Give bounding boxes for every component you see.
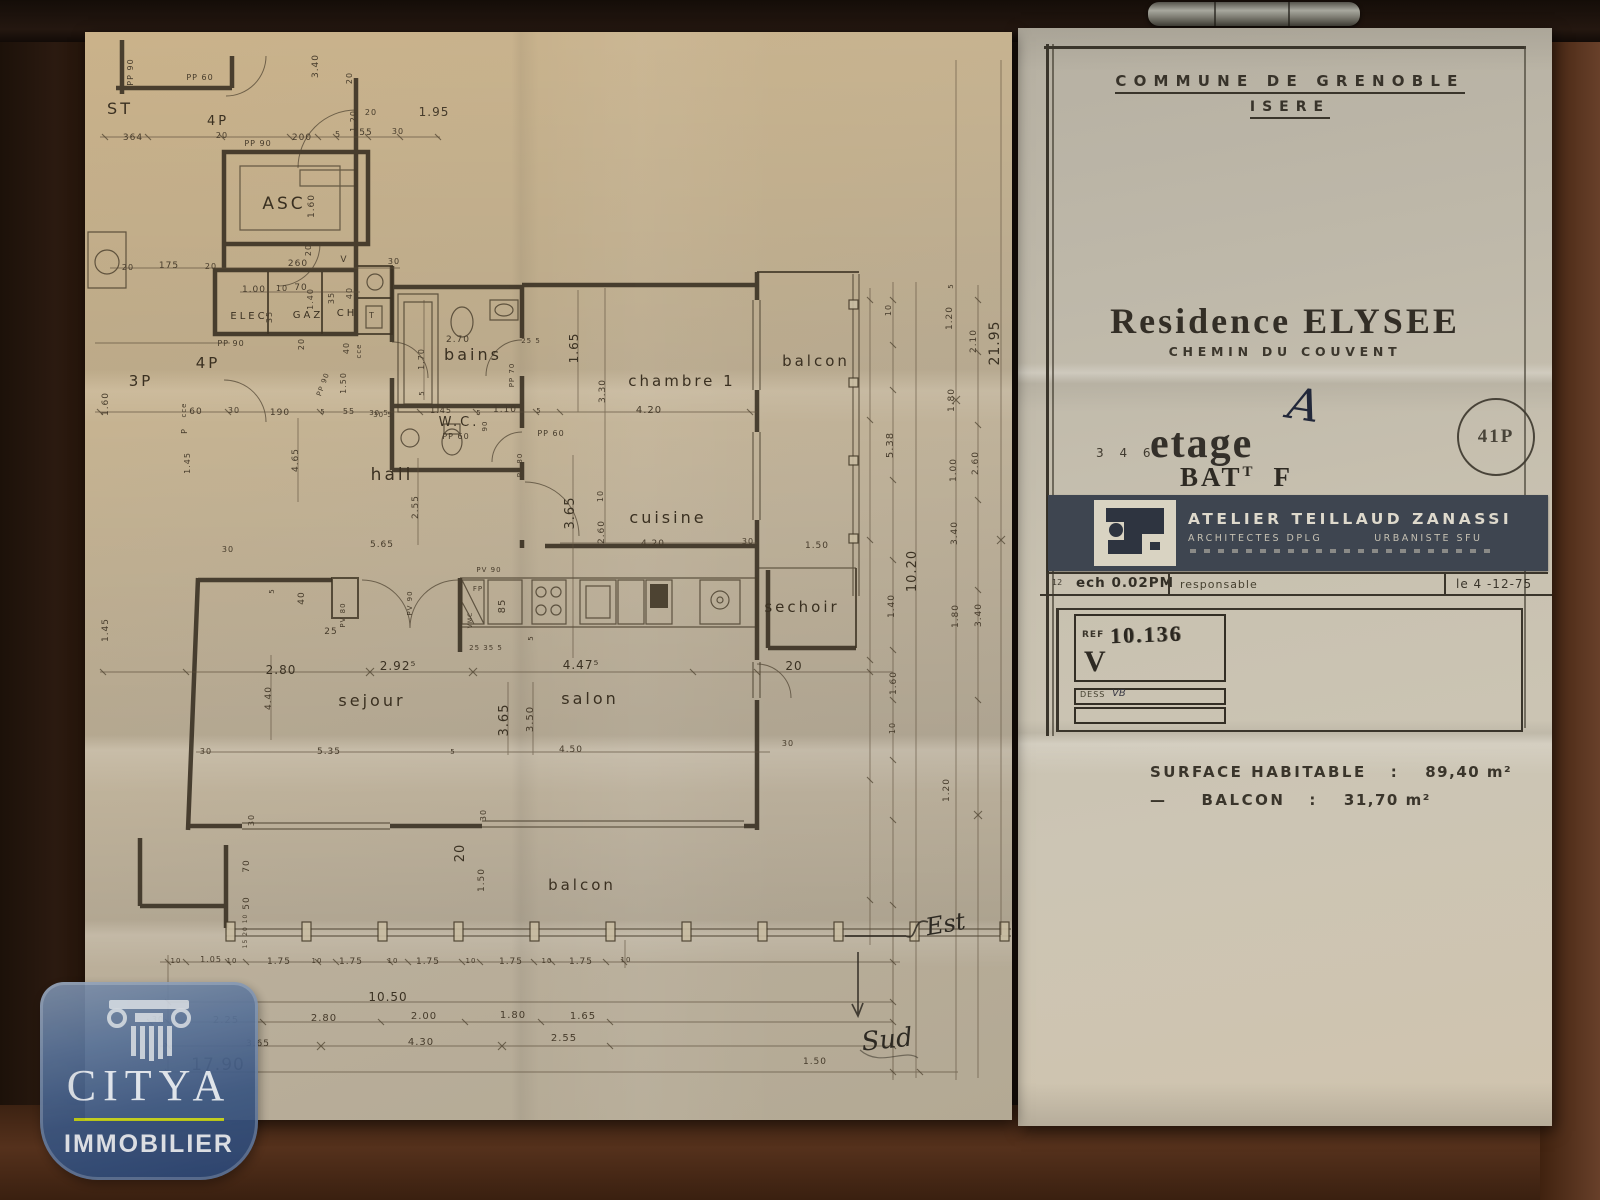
ref-label: REF	[1082, 630, 1104, 640]
dimension-label: 1.80	[947, 388, 957, 412]
table-hinge	[1148, 2, 1360, 26]
dimension-label: PV 90	[476, 566, 501, 574]
dimension-label: 2.55	[551, 1033, 577, 1044]
citya-brand: CITYA	[67, 1064, 232, 1108]
dimension-label: 3.65	[563, 497, 578, 530]
dimension-label: 60	[189, 407, 202, 417]
room-label: W.C.	[439, 415, 480, 430]
dimension-label: 30	[222, 545, 234, 554]
dimension-label: 1.50	[805, 541, 829, 551]
photo-of-floorplan: COMMUNE DE GRENOBLE ISERE Residence ELYS…	[0, 0, 1600, 1200]
room-label: ASC	[262, 194, 305, 214]
dimension-label: 10.20	[905, 550, 920, 592]
dimension-label: 15 20 10	[242, 914, 249, 949]
surface-label: SURFACE HABITABLE	[1150, 763, 1367, 781]
dimension-label: 2.60	[971, 451, 981, 475]
room-label: ST	[107, 99, 133, 118]
dimension-label: 35	[265, 311, 274, 323]
dess-value: VB	[1112, 688, 1126, 699]
surface-value: 89,40 m²	[1425, 763, 1512, 781]
dimension-label: 5	[947, 283, 955, 288]
dimension-label: 21.95	[987, 320, 1003, 365]
bathroom-sink	[490, 300, 518, 320]
dimension-label: PP 60	[537, 429, 564, 438]
bidet	[451, 307, 473, 337]
dimension-label: 30	[247, 814, 256, 826]
dimension-label: cce	[180, 402, 188, 417]
empty-row	[1074, 707, 1226, 724]
dimension-label: PP 90	[315, 371, 331, 397]
room-label: hall	[371, 465, 414, 485]
dimension-label: 5	[527, 635, 535, 640]
dess-label: DESS	[1080, 690, 1105, 699]
dimension-label: P	[180, 428, 189, 434]
dimension-label: 10	[312, 957, 323, 965]
bat-text: BAT	[1180, 462, 1243, 492]
etage-label: etage	[1150, 420, 1253, 468]
dimension-label: 10	[596, 490, 605, 502]
dimension-label: 30	[388, 257, 400, 266]
citya-watermark: CITYA IMMOBILIER	[40, 982, 258, 1180]
dimension-label: 1.00	[242, 285, 266, 295]
batiment-label: BATTF	[1180, 462, 1293, 493]
titleblock-border-inner	[1052, 44, 1054, 736]
dimension-label: 2.10	[969, 329, 979, 353]
dimension-label: FP	[473, 585, 483, 593]
architect-fineprint	[1190, 549, 1490, 553]
dimension-label: 1.65	[570, 1011, 596, 1022]
dimension-label: 5	[418, 390, 426, 395]
residence-address: CHEMIN DU COUVENT	[1050, 344, 1520, 359]
dimension-label: PP 90	[217, 339, 244, 348]
scale-value: ech 0.02PM	[1076, 575, 1174, 591]
room-label: 4P	[196, 354, 221, 372]
date-value: le 4 -12-75	[1456, 577, 1532, 591]
dimension-label: 10	[621, 956, 632, 964]
balcon-colon: :	[1309, 791, 1318, 809]
ref-letter: V	[1084, 645, 1106, 679]
titleblock-border-top	[1044, 46, 1526, 49]
stove-block	[650, 584, 668, 608]
dimension-label: 20	[216, 131, 228, 140]
firm-sub-right: URBANISTE SFU	[1374, 533, 1482, 544]
room-label: salon	[561, 689, 619, 708]
dimension-label: 1.75	[499, 957, 523, 967]
dimension-label: 40	[342, 342, 351, 354]
dimension-label: 200	[292, 133, 312, 143]
balcon-surface-row: —BALCON:31,70 m²	[1150, 791, 1431, 809]
dimension-label: 55	[359, 128, 372, 138]
dimension-label: 4.30	[408, 1037, 434, 1048]
dimension-label: 30	[782, 739, 794, 748]
dimension-label: PP 70	[508, 363, 516, 388]
dimension-label: 2.92⁵	[380, 659, 417, 673]
architect-logo-glyph	[1094, 500, 1176, 566]
dimension-label: 90	[481, 421, 489, 432]
dimension-label: 10	[466, 957, 477, 965]
dimension-label: 5.35	[317, 747, 341, 757]
dimension-label: T	[368, 311, 375, 320]
commune-title: COMMUNE DE GRENOBLE	[1080, 72, 1500, 90]
dimension-label: 5.65	[370, 540, 394, 550]
dimension-label: 1.40	[306, 288, 315, 310]
dimension-label: 10	[888, 722, 897, 734]
washbasin	[401, 429, 419, 447]
dimension-label: 1.70	[417, 348, 426, 370]
room-label: GAZ	[293, 310, 323, 321]
scale-row-index: 12	[1052, 578, 1062, 587]
dimension-label: 70	[242, 859, 252, 872]
dimension-label: 5	[268, 588, 276, 593]
date-divider	[1444, 572, 1446, 594]
walls-thick	[116, 40, 856, 928]
dimension-label: 40	[345, 287, 354, 299]
room-label: chambre 1	[628, 372, 735, 390]
dimension-label: 10	[388, 957, 399, 965]
dimension-label: 1.45	[183, 452, 192, 474]
bat-sup: T	[1243, 464, 1256, 480]
column-capital-icon	[101, 998, 197, 1062]
titleblock-border-right	[1524, 46, 1526, 728]
dimension-label: 20	[304, 244, 313, 256]
dimension-label: 3.65	[497, 704, 512, 737]
dimension-label: 2.00	[411, 1011, 437, 1022]
dimension-label: 10	[542, 957, 553, 965]
dimension-label: 2.55	[411, 495, 421, 519]
surface-colon: :	[1391, 763, 1400, 781]
dimension-label: 1.20	[942, 778, 952, 802]
room-label: balcon	[548, 876, 616, 894]
dimension-label: 5	[536, 407, 541, 415]
dimension-label: 1.40	[887, 594, 897, 618]
residence-name: Residence ELYSEE	[1050, 300, 1520, 342]
dimension-label: 4.50	[559, 745, 583, 755]
citya-subtitle: IMMOBILIER	[64, 1130, 234, 1159]
ref-value-stamp: 10.136	[1110, 621, 1183, 650]
dimension-label: 1.50	[477, 868, 487, 892]
balcon-value: 31,70 m²	[1344, 791, 1431, 809]
scale-row-divider	[1168, 572, 1170, 594]
dimension-label: 3.40	[974, 603, 984, 627]
responsable-label: responsable	[1180, 578, 1258, 591]
citya-divider	[74, 1118, 224, 1121]
handwritten-note: Sud	[860, 1022, 914, 1057]
dimension-label: 40	[297, 591, 307, 604]
floorplan-drawing: ST4P4P3PASCELECGAZCHbainsW.C.hallchambre…	[85, 30, 1012, 1122]
dimension-label: 25	[324, 627, 337, 637]
dimension-label: 35	[327, 292, 336, 304]
dimension-label: 1.80	[500, 1010, 526, 1021]
dimension-label: 30	[742, 537, 754, 546]
dimension-label: 3.40	[311, 54, 321, 78]
dimension-label: 20	[365, 108, 377, 117]
dimension-label: 5.38	[885, 432, 896, 458]
dimension-label: 50	[242, 896, 252, 909]
dimension-label: PP 90	[244, 139, 271, 148]
room-label: sejour	[338, 691, 405, 710]
dimension-label: 1.65	[567, 333, 581, 364]
architect-firm-subtitle: ARCHITECTES DPLGURBANISTE SFU	[1188, 533, 1483, 544]
dimension-label: 30	[200, 747, 212, 756]
dimension-label: VMC	[467, 612, 474, 628]
room-label: sechoir	[764, 598, 839, 616]
dimension-label: 30	[479, 809, 488, 821]
room-label: 4P	[207, 114, 229, 129]
dimension-label: 4.20	[641, 539, 665, 549]
balcon-dash: —	[1150, 791, 1168, 809]
dimension-label: 1.60	[101, 392, 111, 416]
dimension-label: 364	[123, 133, 143, 143]
dimension-label: PP 90	[126, 58, 135, 85]
dimension-label: 1.80	[951, 604, 961, 628]
dimension-label: 25 35 5	[469, 644, 503, 652]
dimension-label: 2.80	[311, 1013, 337, 1024]
dimension-label: 3.30	[598, 379, 608, 403]
dimension-label: 20	[453, 844, 468, 863]
room-label: CH	[337, 308, 358, 319]
dimension-label: 5	[320, 408, 325, 416]
dimension-label: 1.20	[945, 306, 955, 330]
dimension-label: 1.00	[949, 458, 959, 482]
dimension-label: 4.20	[636, 405, 662, 416]
room-label: balcon	[782, 352, 850, 370]
dimension-label: 1.60	[889, 671, 899, 695]
firm-sub-left: ARCHITECTES DPLG	[1188, 533, 1322, 544]
dimension-label: PV 80	[339, 602, 347, 627]
dimension-label: V	[340, 255, 347, 265]
dimension-label: 5	[450, 748, 455, 756]
dimension-label: 1.45	[101, 618, 111, 642]
dimension-label: 1.75	[339, 957, 363, 967]
dimension-label: 20	[297, 338, 306, 350]
dimension-label: PP 80	[516, 453, 524, 478]
dimension-label: PP 60	[186, 73, 213, 82]
kitchen-sink	[580, 580, 616, 624]
dimension-label: PP 60	[442, 432, 469, 441]
dimension-label: 1.60	[307, 194, 317, 218]
dimension-label: 1.50	[803, 1057, 827, 1067]
architect-logo-icon	[1094, 500, 1176, 566]
room-label: 3P	[129, 372, 154, 390]
scale-row-border-bottom	[1040, 594, 1552, 596]
dimension-label: 4.47⁵	[563, 658, 600, 672]
dimension-label: 1.45	[430, 406, 452, 415]
dimension-label: 1.50	[339, 372, 348, 394]
etage-prefix: 3 4 6	[1096, 446, 1157, 460]
dimension-label: 3.40	[950, 521, 960, 545]
dimension-label: 20	[345, 72, 354, 84]
room-label: bains	[444, 345, 502, 364]
dimension-label: 10	[171, 957, 182, 965]
dimension-label: 190	[270, 408, 290, 418]
dimension-label: 4.65	[291, 448, 301, 472]
room-label: ELEC	[230, 311, 267, 322]
dimension-label: 1.95	[419, 105, 450, 119]
dimension-label: 30	[392, 127, 404, 136]
dimension-label: 20	[785, 659, 802, 673]
dimension-label: 30 5	[373, 411, 393, 419]
dimension-label: 30	[228, 406, 240, 415]
vent-shaft	[367, 274, 383, 290]
dimension-label: 2.70	[446, 335, 470, 345]
dimension-label: 10	[884, 304, 893, 316]
dimension-label: 20	[205, 262, 217, 271]
dimension-label: 260	[288, 259, 308, 269]
dimension-label: 175	[159, 261, 179, 271]
dimension-label: 85	[497, 599, 508, 614]
dimension-label: 1.05	[200, 955, 222, 964]
dimension-label: 1.75	[416, 957, 440, 967]
dimension-label: 1.75	[267, 957, 291, 967]
dimension-label: 1.10	[493, 405, 517, 415]
circular-stamp: 41P	[1457, 398, 1535, 476]
dimension-label: 1.20	[349, 110, 358, 132]
dimension-label: 10	[276, 284, 288, 293]
plan-text-layer: ST4P4P3PASCELECGAZCHbainsW.C.hallchambre…	[101, 54, 1003, 1075]
balcon-label: BALCON	[1202, 791, 1286, 809]
bat-value: F	[1274, 462, 1294, 492]
dimension-label: 20	[122, 263, 134, 272]
titleblock-border	[1046, 44, 1049, 736]
architect-firm-name: ATELIER TEILLAUD ZANASSI	[1188, 510, 1512, 528]
dimension-label: 10	[227, 957, 238, 965]
dimension-label: 5	[335, 130, 341, 139]
room-label: cuisine	[629, 508, 706, 527]
dimension-label: 3.50	[525, 706, 536, 732]
dimension-label: 4.40	[264, 686, 274, 710]
dimension-label: 25 5	[521, 337, 541, 345]
scale-row-border	[1048, 572, 1548, 574]
dimension-label: 2.60	[597, 520, 607, 544]
commune-subtitle: ISERE	[1080, 99, 1500, 115]
dimension-label: 1.75	[569, 957, 593, 967]
dimension-label: 5	[476, 409, 481, 417]
dimension-label: cce	[355, 343, 363, 358]
dimension-label: 10.50	[368, 990, 407, 1004]
dimension-label: 55	[343, 407, 355, 416]
dimension-label: 2.80	[266, 663, 297, 677]
surface-habitable-row: SURFACE HABITABLE:89,40 m²	[1150, 763, 1512, 781]
dimension-label: PV 90	[406, 590, 414, 615]
